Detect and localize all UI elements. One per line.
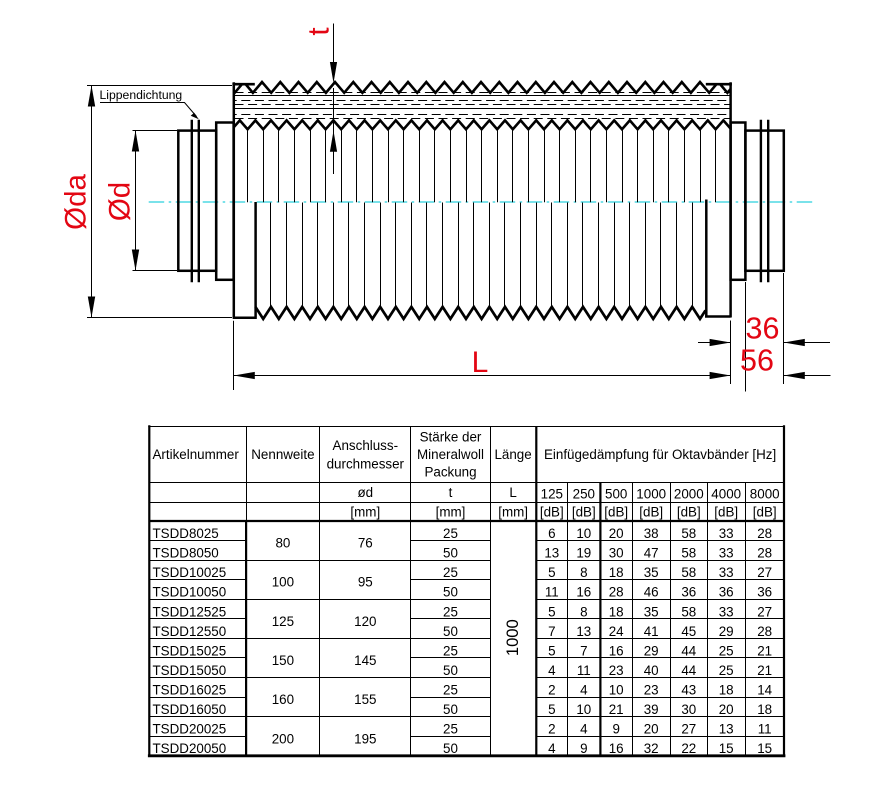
svg-text:25: 25 [443, 565, 458, 580]
svg-text:13: 13 [544, 546, 559, 561]
svg-text:t: t [449, 485, 453, 500]
svg-text:TSDD20025: TSDD20025 [153, 722, 227, 737]
svg-text:76: 76 [358, 536, 373, 551]
svg-text:ød: ød [357, 485, 373, 500]
svg-text:Länge: Länge [494, 447, 531, 462]
svg-text:50: 50 [443, 585, 458, 600]
svg-text:41: 41 [644, 624, 659, 639]
svg-text:28: 28 [757, 546, 772, 561]
svg-text:27: 27 [757, 604, 772, 619]
svg-text:t: t [303, 27, 336, 35]
svg-text:Artikelnummer: Artikelnummer [153, 447, 240, 462]
svg-text:4: 4 [580, 722, 588, 737]
svg-text:50: 50 [443, 546, 458, 561]
svg-text:Anschluss-: Anschluss- [333, 438, 399, 453]
svg-text:1000: 1000 [636, 487, 666, 502]
svg-text:50: 50 [443, 741, 458, 756]
svg-text:8: 8 [580, 565, 587, 580]
svg-text:100: 100 [272, 575, 294, 590]
svg-text:13: 13 [719, 722, 734, 737]
svg-text:9: 9 [580, 741, 587, 756]
svg-text:2000: 2000 [674, 487, 704, 502]
svg-text:25: 25 [443, 526, 458, 541]
svg-text:Nennweite: Nennweite [251, 447, 314, 462]
svg-text:[dB]: [dB] [714, 504, 738, 519]
svg-text:40: 40 [644, 663, 659, 678]
svg-text:4: 4 [580, 683, 588, 698]
svg-text:45: 45 [681, 624, 696, 639]
svg-text:[dB]: [dB] [540, 504, 564, 519]
svg-text:20: 20 [644, 722, 659, 737]
svg-text:TSDD15050: TSDD15050 [153, 663, 227, 678]
svg-text:18: 18 [609, 565, 624, 580]
svg-text:[dB]: [dB] [572, 504, 596, 519]
svg-text:28: 28 [757, 526, 772, 541]
svg-text:22: 22 [681, 741, 696, 756]
svg-text:25: 25 [719, 663, 734, 678]
svg-text:27: 27 [757, 565, 772, 580]
svg-text:1000: 1000 [503, 619, 522, 656]
svg-text:11: 11 [577, 663, 591, 678]
svg-text:16: 16 [609, 741, 624, 756]
svg-text:4000: 4000 [711, 487, 741, 502]
svg-text:[dB]: [dB] [604, 504, 628, 519]
svg-text:TSDD10050: TSDD10050 [153, 585, 227, 600]
svg-text:4: 4 [548, 741, 556, 756]
svg-text:Packung: Packung [424, 465, 476, 480]
svg-text:5: 5 [548, 604, 555, 619]
svg-text:29: 29 [719, 624, 734, 639]
svg-text:5: 5 [548, 643, 555, 658]
svg-text:20: 20 [719, 702, 734, 717]
svg-text:58: 58 [681, 526, 696, 541]
svg-text:13: 13 [576, 624, 591, 639]
svg-text:20: 20 [609, 526, 624, 541]
svg-text:30: 30 [609, 546, 624, 561]
svg-text:2: 2 [548, 722, 555, 737]
svg-text:33: 33 [719, 546, 734, 561]
svg-text:56: 56 [740, 344, 774, 378]
svg-text:50: 50 [443, 702, 458, 717]
svg-text:Lippendichtung: Lippendichtung [100, 88, 183, 102]
svg-text:18: 18 [609, 604, 624, 619]
svg-text:21: 21 [609, 702, 624, 717]
svg-text:7: 7 [580, 643, 587, 658]
svg-text:25: 25 [443, 643, 458, 658]
svg-text:6: 6 [548, 526, 555, 541]
svg-text:L: L [509, 485, 516, 500]
svg-text:30: 30 [681, 702, 696, 717]
svg-text:21: 21 [757, 643, 772, 658]
svg-text:36: 36 [719, 585, 734, 600]
svg-text:28: 28 [609, 585, 624, 600]
svg-text:50: 50 [443, 624, 458, 639]
svg-text:Mineralwoll: Mineralwoll [417, 447, 484, 462]
svg-text:7: 7 [548, 624, 555, 639]
svg-text:9: 9 [612, 722, 619, 737]
svg-text:125: 125 [541, 487, 563, 502]
svg-text:25: 25 [443, 604, 458, 619]
svg-text:TSDD16025: TSDD16025 [153, 683, 227, 698]
svg-text:155: 155 [354, 692, 376, 707]
svg-text:38: 38 [644, 526, 659, 541]
svg-text:[dB]: [dB] [753, 504, 777, 519]
svg-text:25: 25 [443, 683, 458, 698]
svg-text:150: 150 [272, 653, 294, 668]
svg-text:15: 15 [757, 741, 772, 756]
svg-text:58: 58 [681, 604, 696, 619]
svg-text:[mm]: [mm] [436, 504, 466, 519]
svg-text:47: 47 [644, 546, 659, 561]
svg-text:5: 5 [548, 565, 555, 580]
svg-text:43: 43 [681, 683, 696, 698]
svg-text:[mm]: [mm] [498, 504, 528, 519]
svg-text:33: 33 [719, 526, 734, 541]
svg-text:[mm]: [mm] [350, 504, 380, 519]
svg-text:TSDD12550: TSDD12550 [153, 624, 227, 639]
svg-text:[dB]: [dB] [639, 504, 663, 519]
svg-text:36: 36 [681, 585, 696, 600]
svg-text:58: 58 [681, 546, 696, 561]
svg-text:16: 16 [576, 585, 591, 600]
svg-text:58: 58 [681, 565, 696, 580]
svg-text:250: 250 [573, 487, 595, 502]
svg-text:80: 80 [275, 536, 290, 551]
svg-text:18: 18 [757, 702, 772, 717]
svg-text:15: 15 [719, 741, 734, 756]
svg-text:39: 39 [644, 702, 659, 717]
svg-text:33: 33 [719, 604, 734, 619]
svg-text:TSDD16050: TSDD16050 [153, 702, 227, 717]
svg-text:2: 2 [548, 683, 555, 698]
svg-text:Øda: Øda [60, 174, 93, 230]
svg-text:TSDD8050: TSDD8050 [153, 546, 219, 561]
svg-text:36: 36 [757, 585, 772, 600]
svg-text:Stärke der: Stärke der [420, 430, 482, 445]
svg-text:27: 27 [681, 722, 696, 737]
svg-text:32: 32 [644, 741, 659, 756]
svg-text:95: 95 [358, 575, 373, 590]
svg-text:10: 10 [576, 702, 591, 717]
svg-text:Einfügedämpfung für Oktavbände: Einfügedämpfung für Oktavbänder [Hz] [544, 447, 776, 462]
svg-text:14: 14 [757, 683, 772, 698]
svg-text:TSDD20050: TSDD20050 [153, 741, 227, 756]
svg-text:TSDD8025: TSDD8025 [153, 526, 219, 541]
svg-text:11: 11 [545, 585, 559, 600]
svg-text:200: 200 [272, 731, 294, 746]
svg-text:4: 4 [548, 663, 556, 678]
svg-text:5: 5 [548, 702, 555, 717]
svg-text:10: 10 [609, 683, 624, 698]
svg-text:125: 125 [272, 614, 294, 629]
svg-text:36: 36 [746, 312, 780, 346]
svg-text:46: 46 [644, 585, 659, 600]
svg-text:TSDD15025: TSDD15025 [153, 643, 227, 658]
svg-text:23: 23 [644, 683, 659, 698]
svg-text:10: 10 [576, 526, 591, 541]
svg-text:23: 23 [609, 663, 624, 678]
svg-text:19: 19 [576, 546, 591, 561]
svg-text:28: 28 [757, 624, 772, 639]
svg-text:120: 120 [354, 614, 376, 629]
svg-text:TSDD12525: TSDD12525 [153, 604, 227, 619]
svg-text:25: 25 [719, 643, 734, 658]
svg-text:25: 25 [443, 722, 458, 737]
svg-text:21: 21 [757, 663, 772, 678]
svg-text:[dB]: [dB] [677, 504, 701, 519]
svg-text:35: 35 [644, 565, 659, 580]
svg-text:35: 35 [644, 604, 659, 619]
svg-text:18: 18 [719, 683, 734, 698]
svg-text:29: 29 [644, 643, 659, 658]
svg-text:durchmesser: durchmesser [327, 456, 405, 471]
svg-text:16: 16 [609, 643, 624, 658]
svg-text:TSDD10025: TSDD10025 [153, 565, 227, 580]
svg-text:195: 195 [354, 731, 376, 746]
svg-text:500: 500 [605, 487, 627, 502]
svg-text:33: 33 [719, 565, 734, 580]
svg-text:145: 145 [354, 653, 376, 668]
svg-text:50: 50 [443, 663, 458, 678]
svg-text:8: 8 [580, 604, 587, 619]
svg-text:L: L [472, 346, 489, 379]
svg-text:160: 160 [272, 692, 294, 707]
svg-text:8000: 8000 [750, 487, 780, 502]
svg-text:24: 24 [609, 624, 624, 639]
svg-text:44: 44 [681, 663, 696, 678]
svg-text:11: 11 [758, 722, 772, 737]
svg-text:Ød: Ød [104, 182, 137, 221]
svg-text:44: 44 [681, 643, 696, 658]
